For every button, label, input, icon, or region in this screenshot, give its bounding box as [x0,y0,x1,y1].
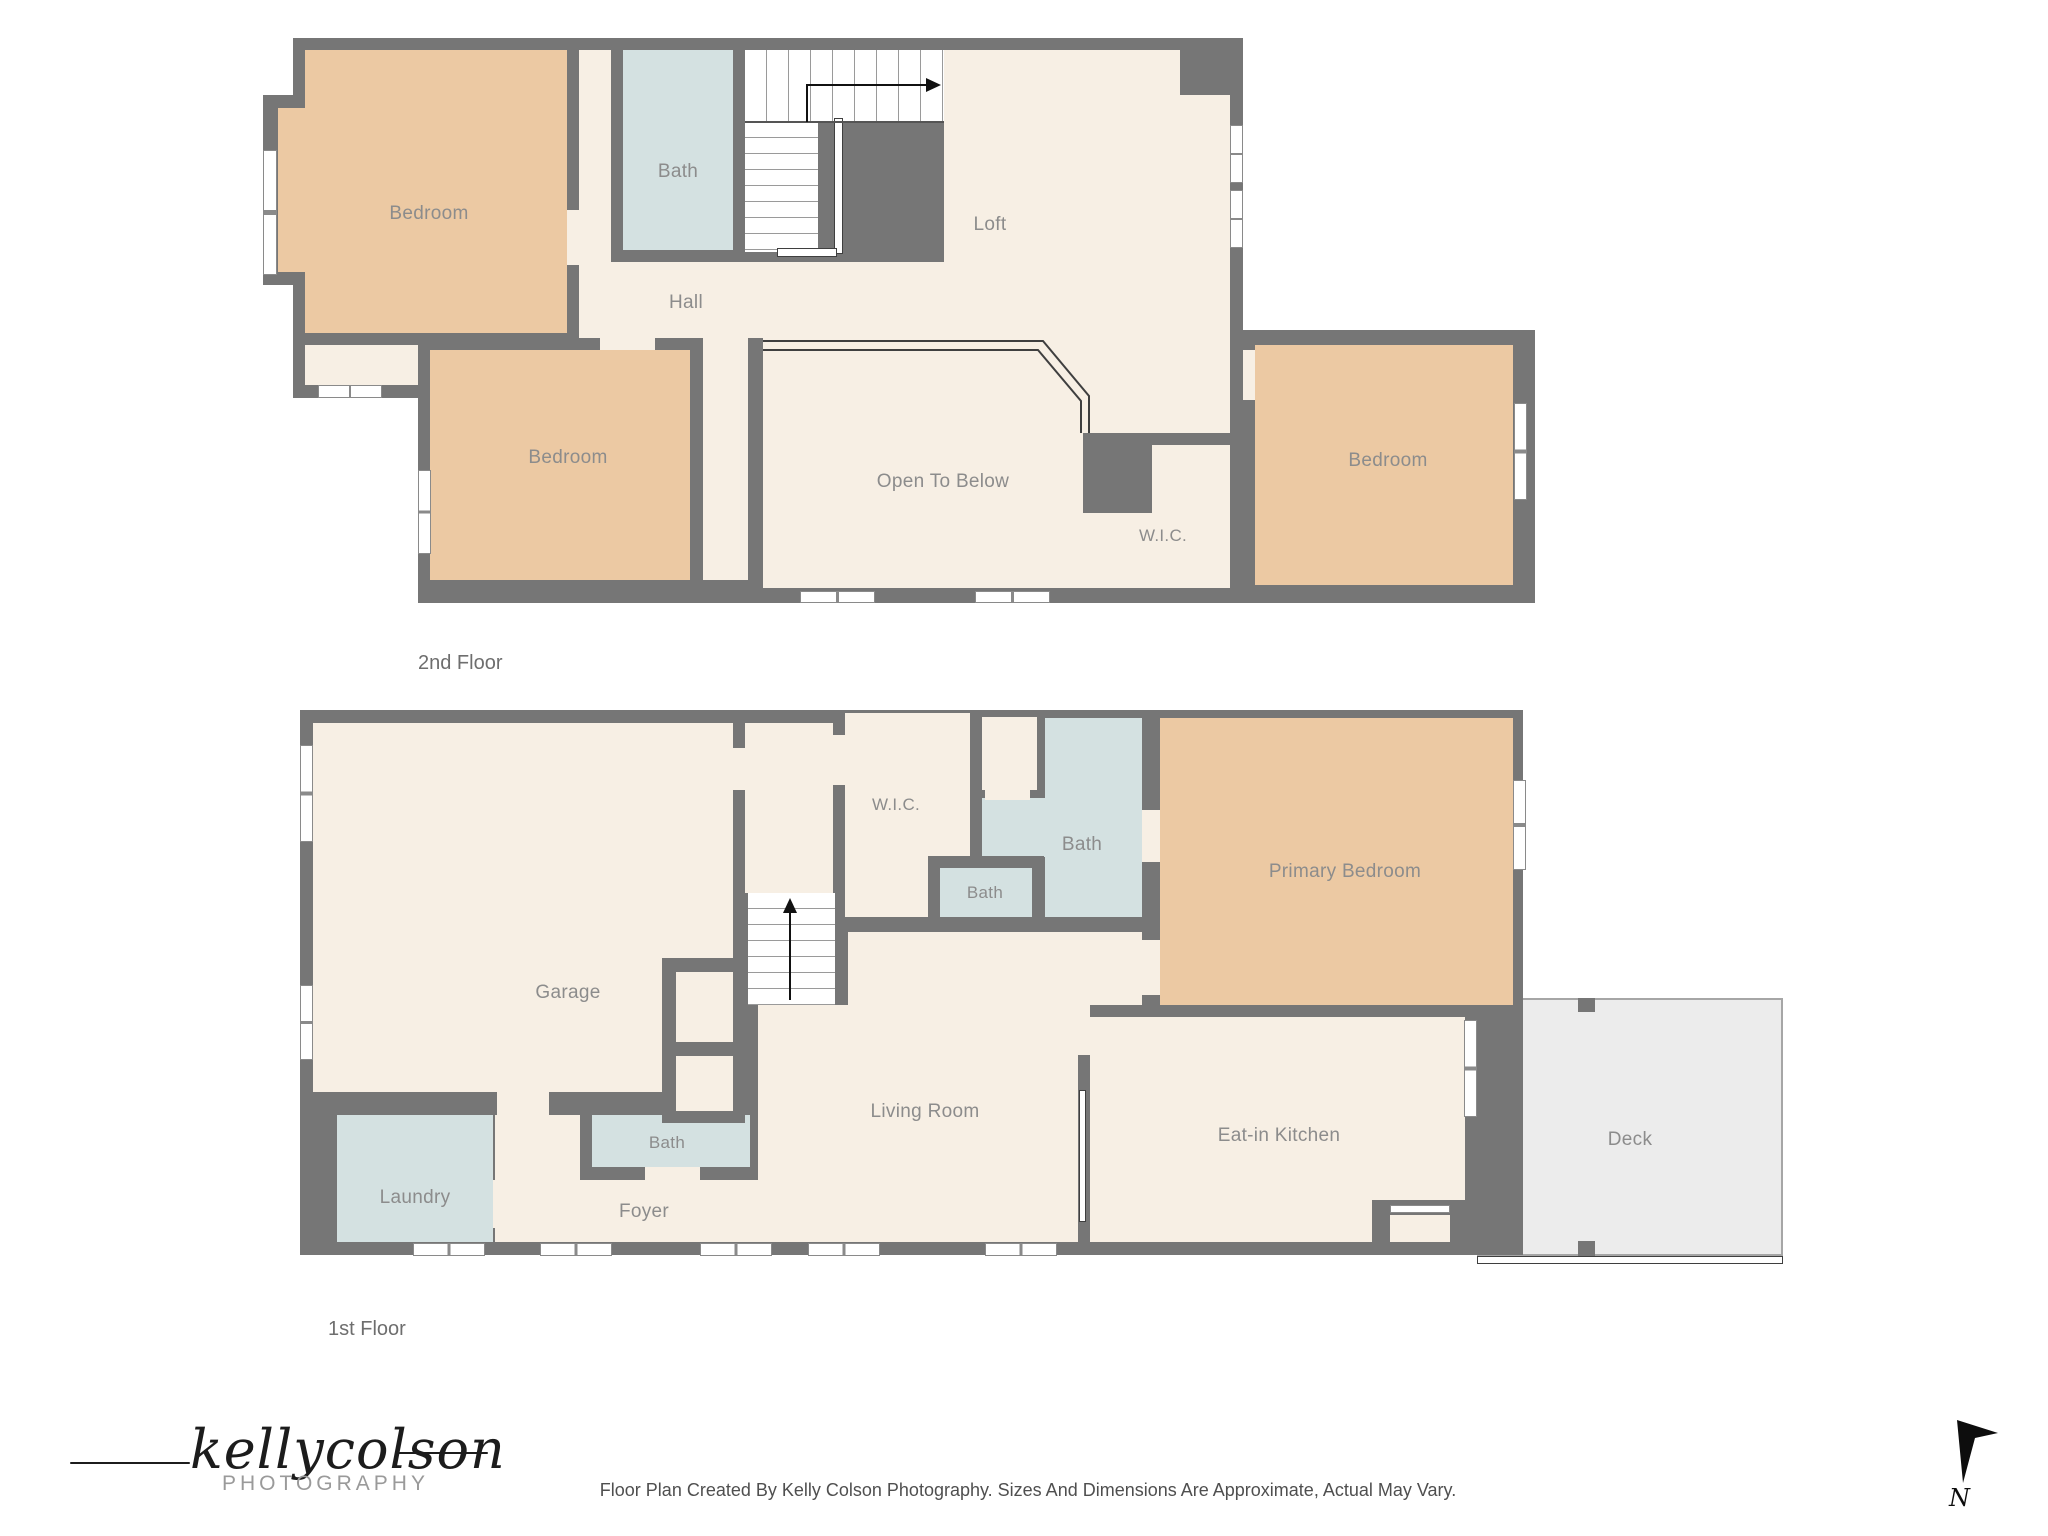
room-label: Hall [669,292,703,314]
logo-flourish-left [70,1462,190,1464]
room-label: Deck [1608,1129,1653,1151]
deck-post [1578,998,1595,1012]
second-floor-label: 2nd Floor [418,652,503,675]
window [540,1243,612,1256]
upper-corridor [745,723,833,893]
door-gap [1142,810,1160,862]
door-gap [645,1167,700,1180]
room-laundry [337,1115,493,1242]
room-label: Loft [974,214,1007,236]
room-foyer [495,1180,1078,1242]
logo-sub-text: PHOTOGRAPHY [222,1472,429,1496]
wall-bath-small [928,856,1044,868]
niche [1390,1215,1450,1242]
window [263,150,277,275]
north-label: N [1948,1484,1971,1512]
hall-corridor [703,338,748,580]
door-gap [733,748,745,790]
door-gap [493,1180,503,1228]
first-floor-plan: Garage W.I.C. Bath Bath Primary Bedroom … [0,700,2048,1400]
disclaimer-text: Floor Plan Created By Kelly Colson Photo… [600,1480,1456,1501]
room-label: Bath [658,161,698,183]
window [975,591,1050,603]
window [800,591,875,603]
stair-railing [834,118,843,254]
room-bedroom-left [305,50,567,333]
stairs-first-floor [748,893,835,1005]
window [413,1243,485,1256]
strip-below-bedroom [305,345,418,385]
window [1514,403,1527,500]
window [1230,190,1243,248]
sliding-door [1079,1090,1086,1222]
first-floor-label: 1st Floor [328,1318,406,1341]
room-wic-2nd [1152,445,1230,588]
window [300,745,313,842]
door-gap [567,210,579,265]
window [700,1243,772,1256]
window [985,1243,1057,1256]
room-label: W.I.C. [872,795,920,815]
wic-corridor [1083,513,1152,588]
room-label: Laundry [380,1187,451,1209]
room-label: Bedroom [528,447,607,469]
window [1513,780,1526,870]
window [300,985,313,1060]
closet [676,972,733,1042]
room-label: Bedroom [1348,450,1427,472]
logo-flourish-right [398,1452,488,1454]
room-bedroom-left-ext [278,108,305,272]
window [1230,125,1243,183]
room-label: Open To Below [877,471,1009,493]
room-label: Bath [649,1133,685,1153]
stairs-lower-run [745,122,818,252]
hall-band [848,932,1142,1005]
deck-railing [1477,1256,1783,1264]
window [318,385,382,398]
room-label: Primary Bedroom [1269,861,1421,883]
footer: kellycolson PHOTOGRAPHY Floor Plan Creat… [0,1390,2048,1536]
closet-strip [579,50,611,262]
door-gap [833,735,845,785]
nook [982,717,1037,790]
door-gap [1243,350,1255,400]
deck-post [1578,1241,1595,1256]
room-label: Eat-in Kitchen [1218,1125,1341,1147]
niche-door [1390,1205,1450,1213]
closet [676,1056,733,1111]
room-bath-main-ext [982,798,1045,857]
room-open-to-below [763,338,1083,588]
wall-bath-small [928,860,940,917]
room-label: Bath [967,883,1003,903]
stair-railing [777,248,837,257]
room-label: Living Room [871,1101,980,1123]
divider-opening [1078,1005,1090,1055]
window [1464,1020,1477,1117]
door-gap [497,1092,549,1115]
window [808,1243,880,1256]
north-arrow-icon: N [1945,1400,2048,1536]
door-gap [1142,940,1160,995]
photographer-logo: kellycolson PHOTOGRAPHY [70,1400,430,1510]
room-label: W.I.C. [1139,526,1187,546]
door-gap [600,338,655,350]
room-label: Foyer [619,1201,669,1223]
door-gap [985,790,1030,800]
second-floor-plan: Bedroom Bath Loft Hall Bedroom Open To B… [0,0,2048,700]
room-label: Bedroom [389,203,468,225]
stairs-upper-run [745,50,944,122]
room-bath-main [1045,718,1142,917]
room-label: Bath [1062,834,1102,856]
room-label: Garage [535,982,600,1004]
window [418,470,431,554]
room-bath-2nd [623,50,733,250]
